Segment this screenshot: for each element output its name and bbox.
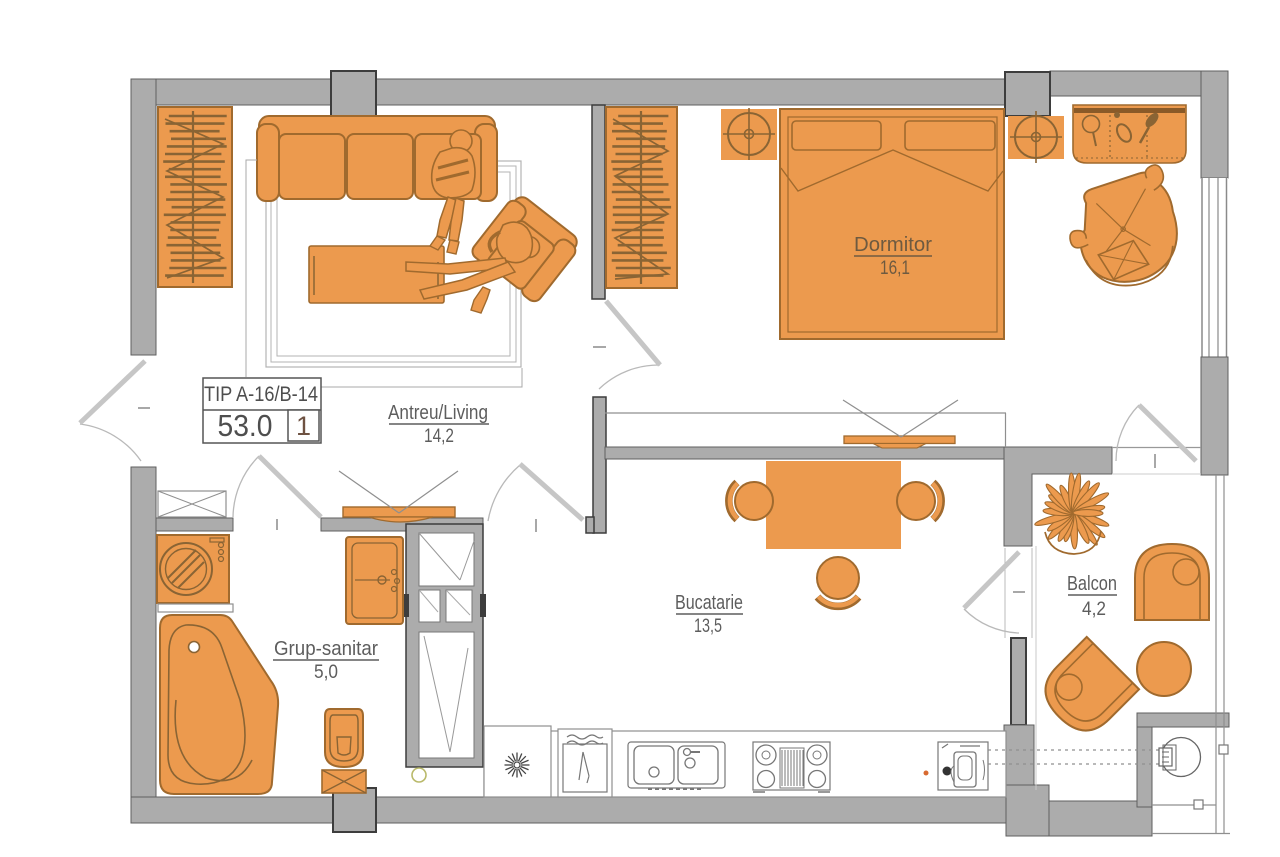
svg-text:4,2: 4,2 bbox=[1082, 599, 1106, 620]
svg-text:13,5: 13,5 bbox=[694, 616, 722, 637]
svg-text:53.0: 53.0 bbox=[218, 408, 273, 443]
svg-text:5,0: 5,0 bbox=[314, 662, 338, 683]
svg-text:16,1: 16,1 bbox=[880, 258, 910, 279]
svg-text:Antreu/Living: Antreu/Living bbox=[388, 402, 488, 424]
svg-text:Balcon: Balcon bbox=[1067, 573, 1117, 595]
svg-text:Bucatarie: Bucatarie bbox=[675, 592, 743, 614]
svg-text:14,2: 14,2 bbox=[424, 426, 454, 447]
svg-text:1: 1 bbox=[296, 411, 311, 441]
svg-text:Grup-sanitar: Grup-sanitar bbox=[274, 638, 378, 660]
svg-text:TIP A-16/B-14: TIP A-16/B-14 bbox=[204, 383, 318, 406]
svg-text:Dormitor: Dormitor bbox=[854, 234, 932, 256]
